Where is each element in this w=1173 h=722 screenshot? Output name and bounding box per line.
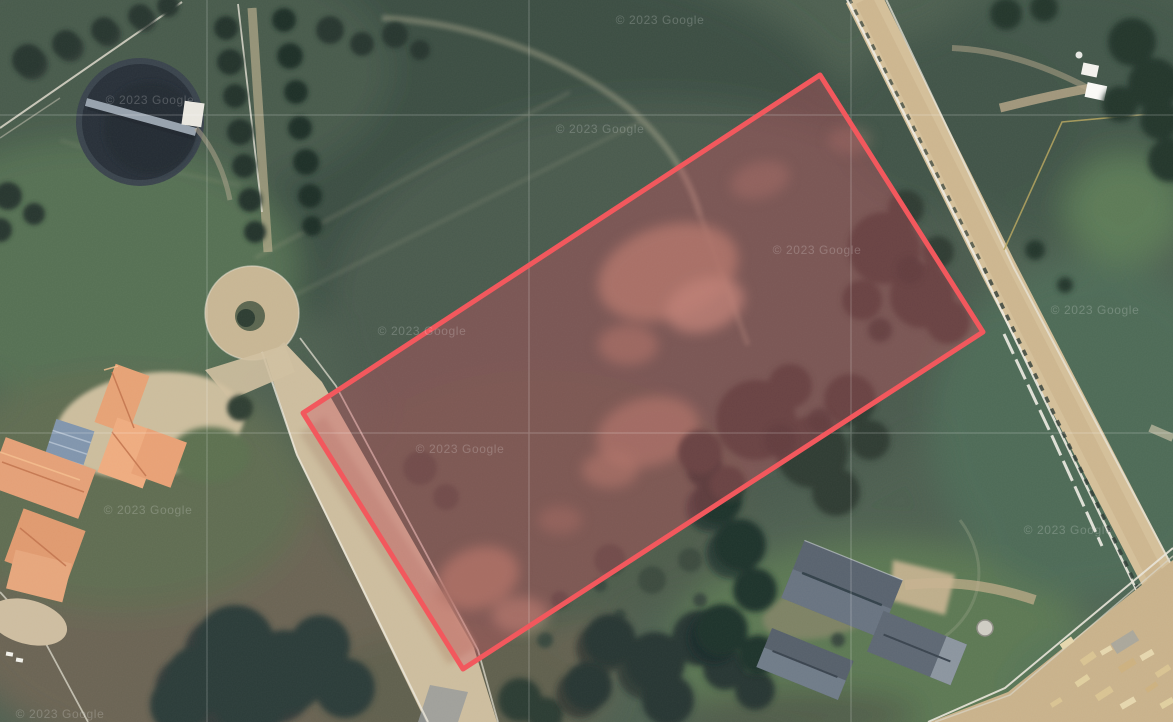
satellite-imagery-canvas [0, 0, 1173, 722]
satellite-map-view[interactable]: © 2023 Google © 2023 Google © 2023 Googl… [0, 0, 1173, 722]
